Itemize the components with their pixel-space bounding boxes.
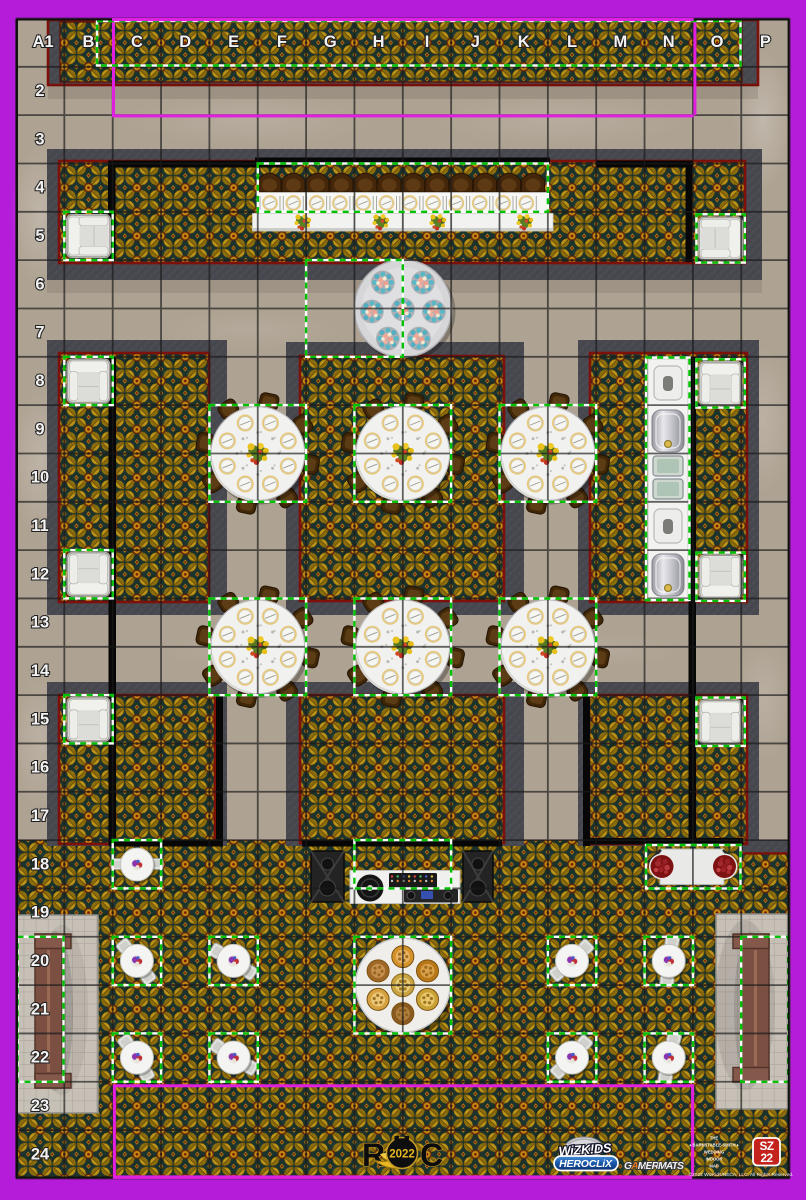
svg-text:H: H [373,33,385,51]
svg-text:F: F [277,33,287,51]
svg-text:8: 8 [35,372,44,390]
svg-text:12: 12 [31,565,49,583]
svg-text:WEDDING: WEDDING [704,1150,724,1155]
svg-text:INDOOR: INDOOR [706,1157,723,1162]
svg-text:G: G [324,33,337,51]
svg-text:B: B [83,33,95,51]
svg-text:15: 15 [31,710,49,728]
svg-text:MAP: MAP [709,1164,719,1169]
svg-text:6: 6 [35,275,44,293]
svg-text:16: 16 [31,759,49,777]
svg-text:E: E [228,33,239,51]
svg-text:K: K [518,33,530,51]
svg-text:5: 5 [35,227,44,245]
svg-text:D: D [179,33,191,51]
svg-text:23: 23 [31,1097,49,1115]
svg-text:HEROCLiX: HEROCLiX [559,1158,613,1170]
svg-text:11: 11 [31,517,48,535]
svg-text:P: P [760,33,771,51]
svg-text:17: 17 [31,807,49,825]
svg-text:©2022 WizKids/NECA, LLC. All R: ©2022 WizKids/NECA, LLC. All Rights Rese… [689,1171,794,1178]
svg-text:14: 14 [31,662,50,680]
svg-text:I: I [425,33,430,51]
svg-text:21: 21 [31,1000,49,1018]
svg-text:19: 19 [31,904,49,922]
svg-text:9: 9 [35,420,44,438]
svg-text:C: C [420,1137,443,1173]
svg-text:20: 20 [31,952,49,970]
svg-text:2: 2 [35,82,44,100]
svg-text:22: 22 [31,1049,49,1067]
svg-text:A1: A1 [33,33,54,51]
svg-text:M: M [614,33,628,51]
svg-text:2022: 2022 [389,1149,415,1161]
svg-text:22: 22 [760,1151,773,1165]
svg-text:13: 13 [31,614,49,632]
svg-text:N: N [663,33,675,51]
svg-text:J: J [471,33,480,51]
svg-text:10: 10 [31,469,49,487]
svg-text:18: 18 [31,855,49,873]
svg-text:L: L [567,33,577,51]
svg-text:24: 24 [31,1145,50,1163]
svg-text:7: 7 [35,324,44,342]
svg-text:O: O [711,33,724,51]
svg-text:THE: THE [710,1136,719,1141]
svg-text:C: C [131,33,143,51]
svg-text:GAMERMATS: GAMERMATS [624,1160,684,1172]
svg-text:♦ BARNSTABLE-SMITH ♦: ♦ BARNSTABLE-SMITH ♦ [689,1143,739,1148]
svg-text:3: 3 [35,130,44,148]
svg-text:4: 4 [35,179,45,197]
